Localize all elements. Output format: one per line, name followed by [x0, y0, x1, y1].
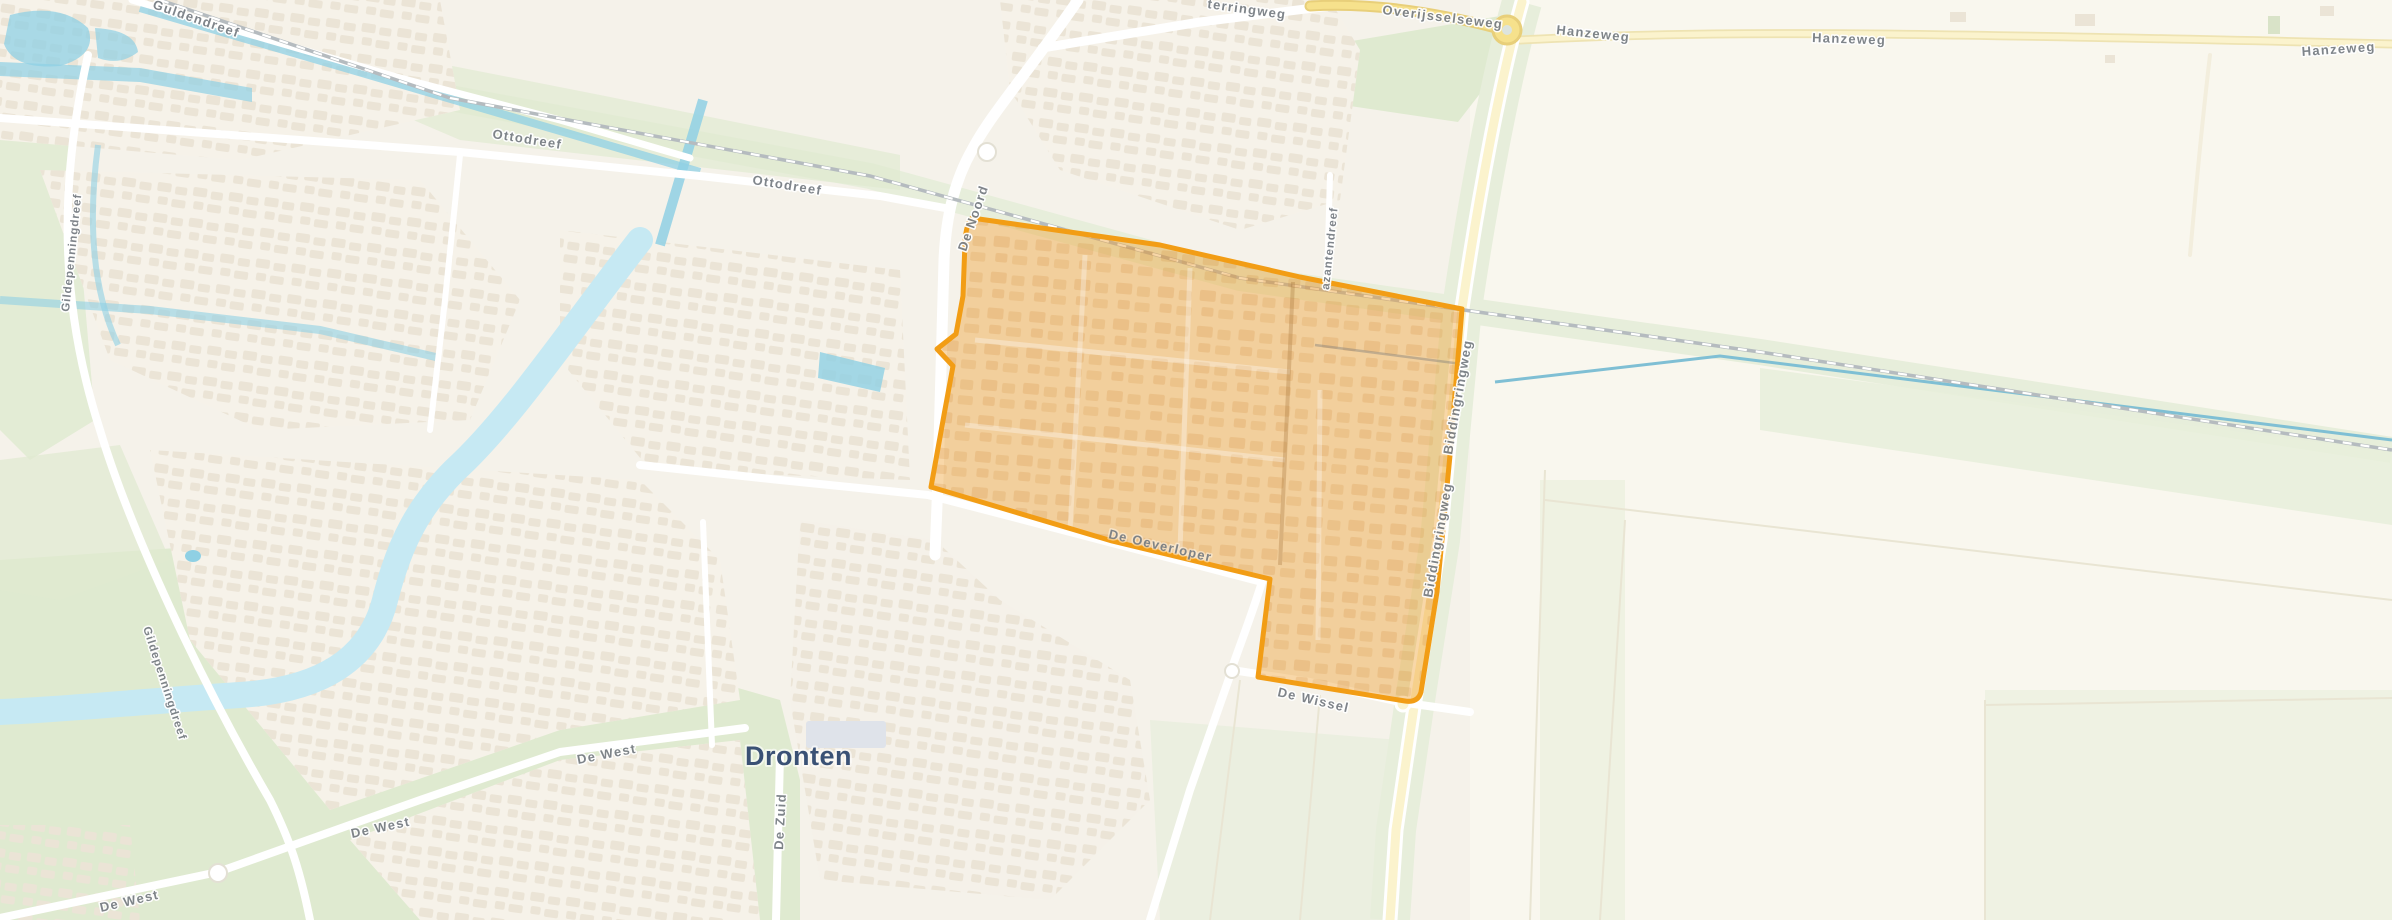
label-de-zuid: De Zuid [771, 793, 789, 850]
town-label-dronten: Dronten [745, 741, 852, 771]
label-hanzeweg-2: Hanzeweg [1812, 30, 1886, 48]
map-canvas[interactable]: Guldendreef Ottodreef Ottodreef De Noord… [0, 0, 2392, 920]
roundabout-de-noord [978, 143, 996, 161]
map-svg: Guldendreef Ottodreef Ottodreef De Noord… [0, 0, 2392, 920]
